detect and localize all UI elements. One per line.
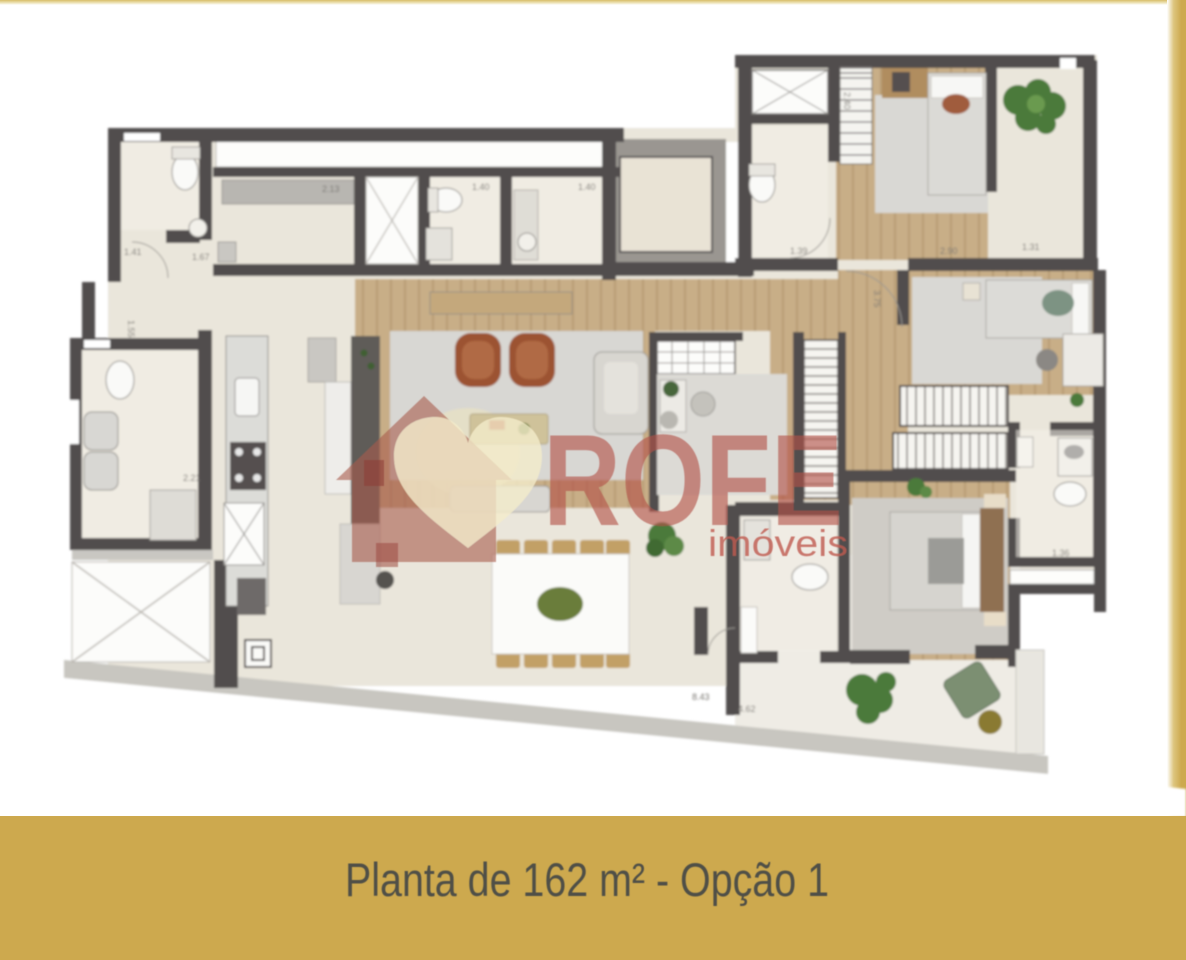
svg-text:imóveis: imóveis xyxy=(708,523,848,564)
svg-text:8.43: 8.43 xyxy=(692,692,710,702)
svg-text:2.90: 2.90 xyxy=(940,246,958,256)
svg-text:4.62: 4.62 xyxy=(738,704,756,714)
svg-text:1.41: 1.41 xyxy=(124,247,142,257)
svg-text:1.55: 1.55 xyxy=(126,320,136,338)
svg-text:Planta de 162 m² - Opção 1: Planta de 162 m² - Opção 1 xyxy=(345,853,829,906)
svg-text:1.31: 1.31 xyxy=(1022,242,1040,252)
svg-text:2.21: 2.21 xyxy=(183,473,201,483)
svg-text:1.40: 1.40 xyxy=(578,182,596,192)
svg-text:1.40: 1.40 xyxy=(472,182,490,192)
svg-text:2.13: 2.13 xyxy=(322,184,340,194)
svg-text:1.67: 1.67 xyxy=(192,252,210,262)
svg-text:1.39: 1.39 xyxy=(790,246,808,256)
svg-text:2.40: 2.40 xyxy=(842,92,852,110)
svg-text:3.75: 3.75 xyxy=(872,290,882,308)
svg-text:1.36: 1.36 xyxy=(1052,548,1070,558)
